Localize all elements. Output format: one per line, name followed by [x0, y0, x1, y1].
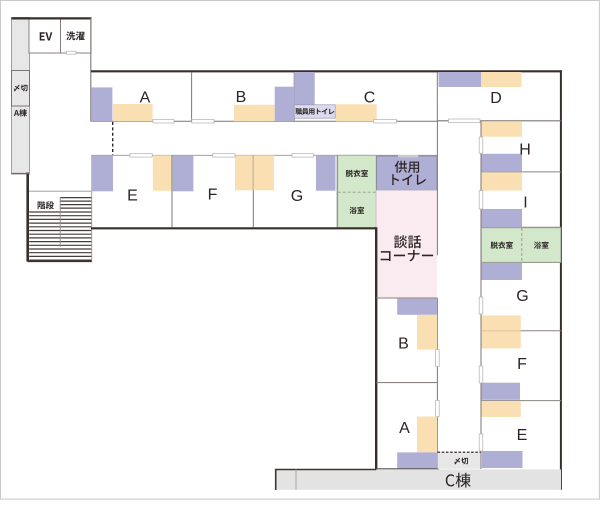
- svg-text:I: I: [523, 194, 527, 211]
- svg-text:A: A: [140, 89, 151, 106]
- svg-text:A: A: [399, 420, 410, 437]
- svg-text:F: F: [517, 356, 527, 373]
- svg-text:C: C: [364, 89, 376, 106]
- svg-text:E: E: [127, 187, 138, 204]
- svg-text:G: G: [291, 188, 303, 205]
- svg-text:G: G: [516, 288, 528, 305]
- svg-text:B: B: [236, 89, 247, 106]
- svg-text:H: H: [519, 141, 531, 158]
- svg-text:E: E: [517, 427, 528, 444]
- svg-text:B: B: [398, 335, 409, 352]
- svg-text:F: F: [208, 186, 218, 203]
- svg-text:D: D: [490, 90, 502, 107]
